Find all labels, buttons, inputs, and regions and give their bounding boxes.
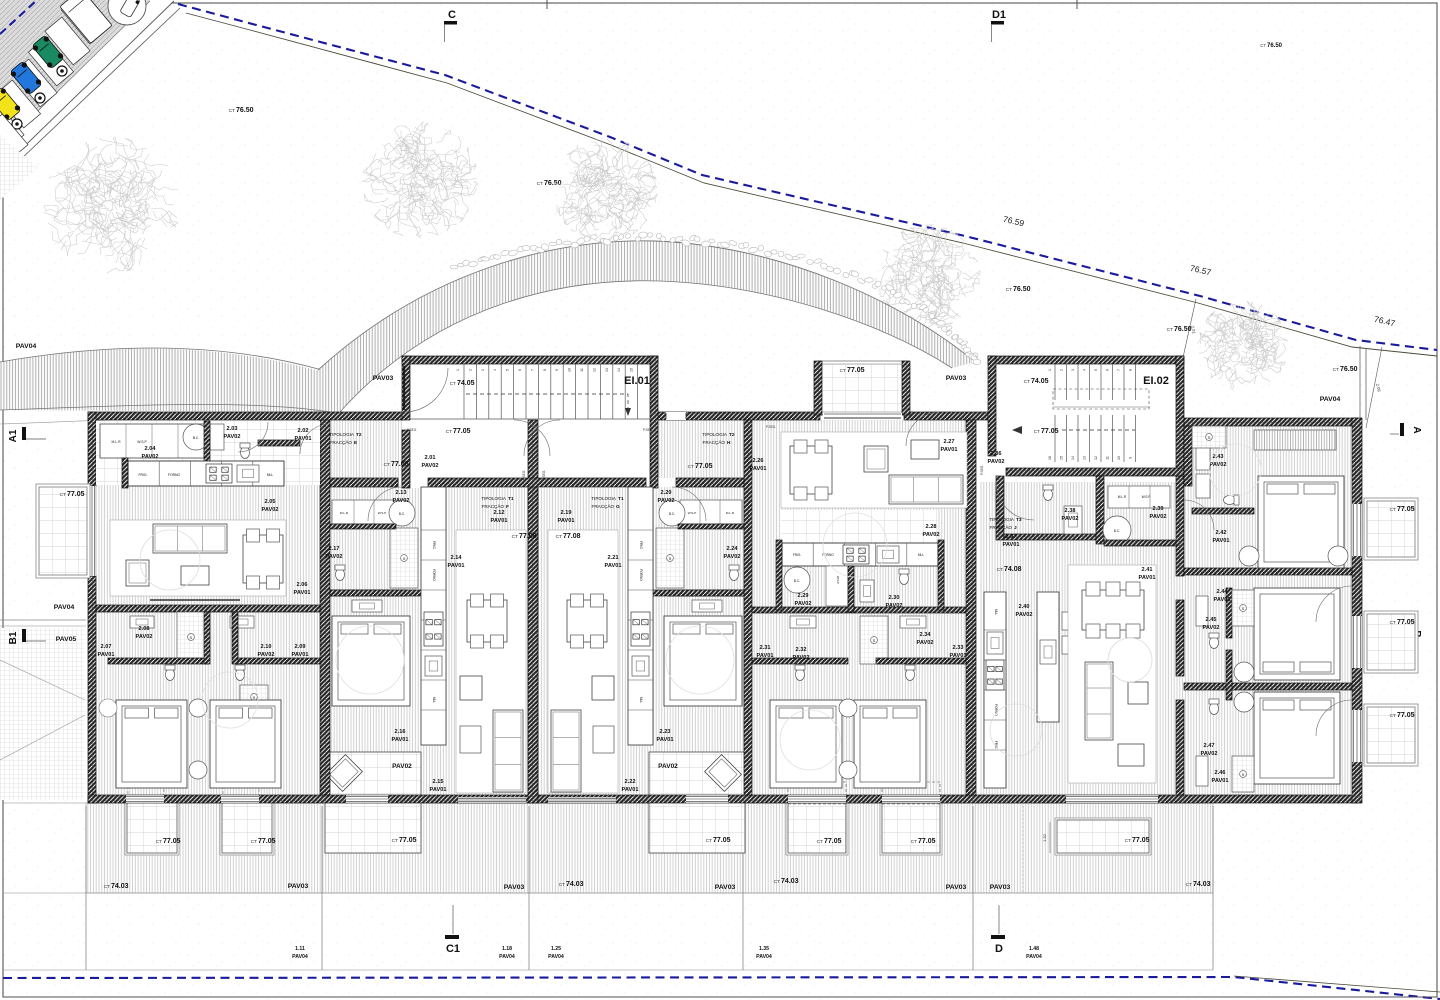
svg-text:G: G	[616, 504, 620, 510]
svg-text:3: 3	[1071, 369, 1075, 371]
svg-text:P.SEG.: P.SEG.	[643, 428, 653, 432]
svg-text:PAV02: PAV02	[793, 655, 810, 661]
svg-text:CT: CT	[1390, 713, 1396, 719]
svg-text:MLL: MLL	[267, 473, 274, 477]
svg-text:2.40: 2.40	[1019, 604, 1030, 610]
svg-text:P.SEG.: P.SEG.	[407, 428, 417, 432]
svg-text:77.05: 77.05	[695, 463, 713, 470]
svg-text:2.08: 2.08	[139, 626, 150, 632]
svg-text:1: 1	[1048, 369, 1052, 371]
svg-text:CT: CT	[1333, 367, 1339, 373]
svg-text:77.05: 77.05	[713, 837, 731, 844]
svg-text:4: 4	[1083, 369, 1087, 371]
svg-text:CT: CT	[688, 464, 694, 470]
svg-text:CT: CT	[1125, 838, 1131, 844]
svg-text:CT: CT	[156, 839, 162, 845]
svg-text:PAV01: PAV01	[757, 653, 774, 659]
svg-text:2.12: 2.12	[494, 510, 505, 516]
svg-text:74.03: 74.03	[1193, 881, 1211, 888]
svg-text:P.SEG.: P.SEG.	[980, 465, 984, 475]
svg-text:H: H	[727, 440, 731, 446]
svg-text:C1: C1	[446, 943, 460, 955]
svg-text:PAV01: PAV01	[750, 466, 767, 472]
svg-text:2.42: 2.42	[1216, 530, 1227, 536]
svg-text:2.31: 2.31	[760, 645, 771, 651]
svg-text:CT: CT	[817, 839, 823, 845]
svg-text:2.03: 2.03	[227, 426, 238, 432]
svg-text:CT: CT	[512, 534, 518, 540]
svg-text:77.05: 77.05	[847, 367, 865, 374]
svg-text:14: 14	[617, 368, 621, 372]
svg-text:14: 14	[1071, 456, 1075, 460]
svg-text:J: J	[1014, 525, 1017, 531]
svg-text:2.16: 2.16	[395, 729, 406, 735]
svg-text:P.SEG.: P.SEG.	[522, 470, 526, 480]
svg-text:PAV02: PAV02	[724, 554, 741, 560]
svg-text:W.S.P: W.S.P	[378, 511, 387, 515]
svg-text:PAV02: PAV02	[658, 498, 675, 504]
svg-text:76.50: 76.50	[544, 180, 562, 187]
svg-text:T2: T2	[729, 432, 735, 438]
svg-text:2.17: 2.17	[329, 546, 340, 552]
svg-text:B.C.: B.C.	[1114, 529, 1120, 533]
svg-text:PAV02: PAV02	[1016, 612, 1033, 618]
svg-text:PAV03: PAV03	[946, 375, 967, 382]
svg-text:77.08: 77.08	[519, 533, 537, 540]
svg-text:2.44: 2.44	[1217, 589, 1229, 595]
svg-text:FRACÇÃO: FRACÇÃO	[330, 439, 353, 445]
svg-text:PAV02: PAV02	[1210, 462, 1227, 468]
svg-text:CT: CT	[1024, 379, 1030, 385]
svg-text:7: 7	[530, 369, 534, 371]
svg-text:CT: CT	[537, 181, 543, 187]
svg-text:CT: CT	[706, 838, 712, 844]
svg-text:A: A	[1411, 426, 1422, 433]
svg-text:2.14: 2.14	[451, 555, 463, 561]
svg-text:76.50: 76.50	[1013, 286, 1031, 293]
svg-text:2.29: 2.29	[798, 593, 809, 599]
svg-text:W.S.P: W.S.P	[137, 440, 147, 444]
svg-text:M.L.R: M.L.R	[111, 440, 121, 444]
svg-text:2.04: 2.04	[145, 446, 157, 452]
svg-text:5: 5	[506, 369, 510, 371]
svg-text:2.38: 2.38	[1065, 508, 1076, 514]
svg-text:CT: CT	[1186, 882, 1192, 888]
svg-text:CT: CT	[1390, 620, 1396, 626]
svg-text:2.02: 2.02	[298, 428, 309, 434]
svg-text:W.S.P: W.S.P	[836, 576, 840, 584]
svg-text:2.06: 2.06	[297, 582, 308, 588]
svg-text:FORNO: FORNO	[168, 473, 181, 477]
svg-text:2: 2	[468, 369, 472, 371]
svg-text:CT: CT	[840, 368, 846, 374]
svg-text:77.08: 77.08	[563, 533, 581, 540]
svg-text:B1: B1	[8, 631, 19, 644]
svg-text:2.01: 2.01	[425, 455, 436, 461]
svg-text:74.03: 74.03	[781, 878, 799, 885]
svg-text:2.34: 2.34	[920, 632, 932, 638]
svg-text:M.L.R: M.L.R	[726, 511, 735, 515]
svg-text:PAV03: PAV03	[373, 375, 394, 382]
svg-text:5: 5	[1094, 369, 1098, 371]
svg-text:CT: CT	[446, 429, 452, 435]
svg-text:1.18: 1.18	[502, 946, 512, 952]
svg-text:12: 12	[592, 368, 596, 372]
svg-text:PAV02: PAV02	[136, 634, 153, 640]
svg-text:76.50: 76.50	[1267, 43, 1283, 49]
svg-text:M.L.R: M.L.R	[1118, 495, 1127, 499]
svg-text:CT: CT	[384, 462, 390, 468]
svg-text:CT: CT	[60, 492, 66, 498]
svg-text:PAV01: PAV01	[1139, 575, 1156, 581]
svg-text:2.21: 2.21	[608, 555, 619, 561]
svg-text:74.05: 74.05	[1031, 378, 1049, 385]
svg-text:CT: CT	[104, 884, 110, 890]
svg-text:PAV01: PAV01	[98, 652, 115, 658]
svg-text:TIPOLOGIA: TIPOLOGIA	[481, 496, 507, 501]
svg-text:PAV02: PAV02	[1201, 751, 1218, 757]
svg-text:15: 15	[630, 368, 634, 372]
svg-text:A1: A1	[8, 429, 19, 442]
svg-text:MLL: MLL	[994, 609, 998, 615]
svg-text:M.L.R: M.L.R	[340, 511, 349, 515]
svg-text:T1: T1	[618, 496, 624, 502]
svg-text:2.19: 2.19	[561, 510, 572, 516]
svg-text:77.05: 77.05	[918, 838, 936, 845]
svg-text:8: 8	[543, 369, 547, 371]
svg-text:FRACÇÃO: FRACÇÃO	[703, 439, 726, 445]
svg-text:PAV02: PAV02	[988, 459, 1005, 465]
svg-text:PAV02: PAV02	[1203, 625, 1220, 631]
svg-text:1.32: 1.32	[1042, 833, 1047, 842]
svg-text:1.11: 1.11	[295, 946, 305, 952]
svg-text:FRIG: FRIG	[432, 541, 436, 549]
svg-text:2.10: 2.10	[261, 644, 272, 650]
svg-text:2.05: 2.05	[265, 499, 276, 505]
svg-text:B.C.: B.C.	[669, 512, 675, 516]
svg-text:PAV05: PAV05	[56, 636, 77, 643]
svg-text:B.C.: B.C.	[399, 512, 405, 516]
svg-text:77.05: 77.05	[1132, 837, 1150, 844]
svg-text:77.05: 77.05	[1397, 506, 1415, 513]
svg-text:PAV02: PAV02	[917, 640, 934, 646]
svg-text:2.28: 2.28	[926, 524, 937, 530]
svg-text:PAV04: PAV04	[292, 954, 308, 960]
svg-text:2.09: 2.09	[295, 644, 306, 650]
svg-text:FORNO: FORNO	[432, 569, 436, 581]
svg-text:PAV02: PAV02	[923, 532, 940, 538]
svg-text:2.15: 2.15	[433, 779, 444, 785]
svg-text:2.37: 2.37	[1006, 534, 1017, 540]
svg-text:9: 9	[555, 369, 559, 371]
svg-text:13: 13	[605, 368, 609, 372]
svg-text:6: 6	[518, 369, 522, 371]
svg-text:2.30: 2.30	[889, 595, 900, 601]
svg-text:CT: CT	[556, 534, 562, 540]
svg-text:CT: CT	[559, 882, 565, 888]
svg-text:C: C	[448, 9, 456, 21]
svg-text:74.08: 74.08	[1004, 566, 1022, 573]
svg-text:PAV04: PAV04	[548, 954, 564, 960]
svg-text:2.46: 2.46	[1215, 770, 1226, 776]
svg-text:77.05: 77.05	[258, 838, 276, 845]
svg-text:F: F	[506, 504, 509, 510]
svg-text:76.50: 76.50	[1174, 326, 1192, 333]
svg-text:77.05: 77.05	[1397, 712, 1415, 719]
svg-text:CT: CT	[229, 108, 235, 114]
svg-text:PAV02: PAV02	[224, 434, 241, 440]
svg-text:PAV04: PAV04	[1320, 396, 1341, 403]
svg-text:PAV02: PAV02	[393, 498, 410, 504]
svg-text:CT: CT	[1260, 43, 1266, 48]
svg-text:2.32: 2.32	[796, 647, 807, 653]
svg-text:P.SEG.: P.SEG.	[766, 425, 776, 429]
svg-text:2.27: 2.27	[944, 439, 955, 445]
svg-text:77.05: 77.05	[163, 838, 181, 845]
svg-text:EI.02: EI.02	[1143, 375, 1169, 387]
svg-text:74.03: 74.03	[111, 883, 129, 890]
svg-text:PAV03: PAV03	[715, 884, 736, 891]
svg-text:PAV01: PAV01	[558, 518, 575, 524]
svg-text:77.05: 77.05	[399, 837, 417, 844]
svg-text:PAV02: PAV02	[258, 652, 275, 658]
svg-text:2.45: 2.45	[1206, 617, 1217, 623]
svg-text:FORNO: FORNO	[639, 569, 643, 581]
svg-text:7: 7	[1117, 369, 1121, 371]
svg-text:CT: CT	[911, 839, 917, 845]
svg-text:CT: CT	[997, 567, 1003, 573]
svg-text:TIPOLOGIA: TIPOLOGIA	[989, 517, 1015, 522]
svg-text:FRACÇÃO: FRACÇÃO	[482, 503, 505, 509]
svg-text:PAV01: PAV01	[622, 787, 639, 793]
svg-text:3: 3	[481, 369, 485, 371]
svg-text:CT: CT	[251, 839, 257, 845]
svg-text:15: 15	[1060, 456, 1064, 460]
svg-text:PAV04: PAV04	[16, 343, 37, 350]
svg-text:2.20: 2.20	[661, 490, 672, 496]
svg-text:74.03: 74.03	[566, 881, 584, 888]
svg-text:PAV02: PAV02	[262, 507, 279, 513]
svg-text:PAV04: PAV04	[54, 604, 75, 611]
svg-text:MLL: MLL	[639, 697, 643, 703]
svg-text:11: 11	[1106, 456, 1110, 460]
svg-text:MLL: MLL	[432, 697, 436, 703]
svg-text:2.13: 2.13	[396, 490, 407, 496]
svg-text:77.05: 77.05	[1041, 428, 1059, 435]
svg-text:1: 1	[456, 369, 460, 371]
svg-text:PAV01: PAV01	[294, 590, 311, 596]
svg-text:10: 10	[568, 368, 572, 372]
svg-text:4: 4	[493, 369, 497, 371]
svg-text:13: 13	[1083, 456, 1087, 460]
svg-text:6: 6	[1106, 369, 1110, 371]
svg-text:2.26: 2.26	[753, 458, 764, 464]
svg-text:FORNO: FORNO	[994, 704, 998, 716]
svg-text:CT: CT	[1006, 287, 1012, 293]
svg-text:77.05: 77.05	[1397, 619, 1415, 626]
svg-text:8: 8	[1129, 369, 1133, 371]
svg-text:10: 10	[1117, 456, 1121, 460]
svg-text:2.39: 2.39	[1153, 506, 1164, 512]
svg-text:PAV01: PAV01	[1214, 597, 1231, 603]
svg-text:1.25: 1.25	[551, 946, 561, 952]
svg-text:FRACÇÃO: FRACÇÃO	[990, 524, 1013, 530]
svg-text:1.48: 1.48	[1029, 946, 1039, 952]
svg-text:B.C.: B.C.	[193, 436, 200, 440]
svg-text:PAV01: PAV01	[950, 653, 967, 659]
svg-text:PAV01: PAV01	[1212, 778, 1229, 784]
svg-text:PAV02: PAV02	[142, 454, 159, 460]
svg-text:PAV02: PAV02	[658, 763, 678, 770]
svg-text:PAV01: PAV01	[941, 447, 958, 453]
svg-text:PAV04: PAV04	[1026, 954, 1042, 960]
svg-text:2: 2	[1060, 369, 1064, 371]
svg-text:PAV02: PAV02	[326, 554, 343, 560]
svg-text:PAV02: PAV02	[392, 763, 412, 770]
svg-text:TIPOLOGIA: TIPOLOGIA	[702, 432, 728, 437]
svg-text:2.07: 2.07	[101, 644, 112, 650]
svg-text:11: 11	[580, 368, 584, 372]
svg-text:PAV01: PAV01	[1003, 542, 1020, 548]
svg-text:D: D	[995, 943, 1003, 955]
svg-text:CT: CT	[774, 879, 780, 885]
svg-text:2.33: 2.33	[953, 645, 964, 651]
svg-text:PAV01: PAV01	[605, 563, 622, 569]
svg-text:77.05: 77.05	[453, 428, 471, 435]
svg-text:2.47: 2.47	[1204, 743, 1215, 749]
svg-text:PAV03: PAV03	[990, 884, 1011, 891]
svg-text:CT: CT	[1034, 429, 1040, 435]
svg-text:CT: CT	[450, 381, 456, 387]
svg-text:W.S.P: W.S.P	[1142, 495, 1151, 499]
svg-text:PAV02: PAV02	[795, 601, 812, 607]
svg-text:12: 12	[1094, 456, 1098, 460]
svg-text:2.36: 2.36	[991, 451, 1002, 457]
svg-text:PAV02: PAV02	[886, 603, 903, 609]
svg-text:PAV01: PAV01	[1213, 538, 1230, 544]
svg-text:FRIG.: FRIG.	[793, 553, 802, 557]
svg-text:PAV04: PAV04	[499, 954, 515, 960]
svg-text:PAV01: PAV01	[448, 563, 465, 569]
svg-text:77.05: 77.05	[824, 838, 842, 845]
svg-text:TIPOLOGIA: TIPOLOGIA	[591, 496, 617, 501]
svg-text:PAV01: PAV01	[292, 652, 309, 658]
svg-text:PAV01: PAV01	[657, 737, 674, 743]
svg-text:77.05: 77.05	[67, 491, 85, 498]
svg-text:CT: CT	[1167, 327, 1173, 333]
svg-text:2.24: 2.24	[727, 546, 739, 552]
svg-text:PAV03: PAV03	[946, 884, 967, 891]
svg-text:W.S.P: W.S.P	[688, 511, 697, 515]
svg-text:16: 16	[1048, 456, 1052, 460]
svg-text:76.50: 76.50	[1340, 366, 1358, 373]
svg-text:CT: CT	[1390, 507, 1396, 513]
svg-text:2.22: 2.22	[625, 779, 636, 785]
svg-text:74.05: 74.05	[457, 380, 475, 387]
svg-text:PAV01: PAV01	[430, 787, 447, 793]
svg-text:76.50: 76.50	[236, 107, 254, 114]
svg-text:2.41: 2.41	[1142, 567, 1153, 573]
svg-text:9: 9	[1129, 457, 1133, 459]
svg-text:EI.01: EI.01	[624, 375, 650, 387]
svg-text:P.SEG.: P.SEG.	[542, 470, 546, 480]
svg-text:1.35: 1.35	[759, 946, 769, 952]
svg-text:2.23: 2.23	[660, 729, 671, 735]
svg-text:PAV03: PAV03	[288, 883, 309, 890]
svg-text:PAV02: PAV02	[1062, 516, 1079, 522]
svg-text:PAV01: PAV01	[491, 518, 508, 524]
svg-text:CT: CT	[392, 838, 398, 844]
svg-text:FRIG: FRIG	[639, 541, 643, 549]
svg-text:D1: D1	[992, 9, 1006, 21]
svg-text:MLL: MLL	[918, 553, 924, 557]
svg-text:PAV02: PAV02	[422, 463, 439, 469]
svg-text:T1: T1	[508, 496, 514, 502]
svg-text:FRIG.: FRIG.	[138, 473, 147, 477]
svg-text:T2: T2	[356, 432, 362, 438]
svg-text:TIPOLOGIA: TIPOLOGIA	[329, 432, 355, 437]
svg-text:PAV01: PAV01	[392, 737, 409, 743]
svg-text:PAV02: PAV02	[1150, 514, 1167, 520]
svg-text:77.08: 77.08	[391, 461, 409, 468]
svg-text:FRACÇÃO: FRACÇÃO	[592, 503, 615, 509]
svg-text:PAV04: PAV04	[756, 954, 772, 960]
svg-text:PAV03: PAV03	[504, 884, 525, 891]
svg-text:B.C.: B.C.	[794, 579, 800, 583]
